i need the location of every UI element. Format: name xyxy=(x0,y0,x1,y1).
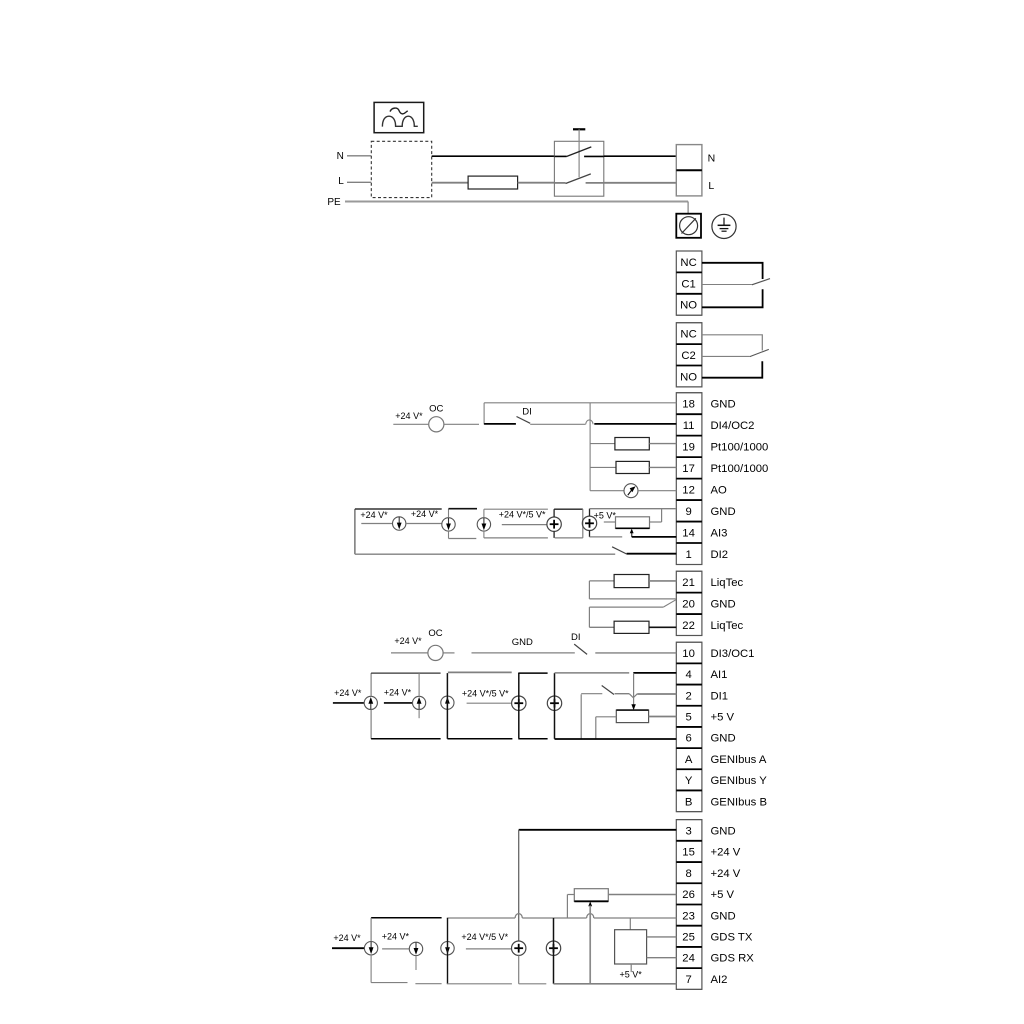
svg-text:10: 10 xyxy=(682,648,695,660)
svg-text:22: 22 xyxy=(682,620,695,632)
svg-text:6: 6 xyxy=(685,733,691,745)
svg-text:1: 1 xyxy=(685,549,691,561)
svg-text:DI3/OC1: DI3/OC1 xyxy=(711,648,755,660)
svg-text:GENIbus B: GENIbus B xyxy=(711,796,768,808)
svg-text:+5 V*: +5 V* xyxy=(594,511,617,521)
svg-text:Y: Y xyxy=(685,775,693,787)
svg-text:L: L xyxy=(708,180,714,192)
svg-text:GND: GND xyxy=(711,506,736,518)
svg-text:11: 11 xyxy=(683,420,695,432)
svg-text:A: A xyxy=(685,754,693,766)
svg-text:+24 V*: +24 V* xyxy=(411,509,439,519)
svg-text:N: N xyxy=(337,151,344,162)
svg-text:2: 2 xyxy=(685,690,691,702)
svg-text:26: 26 xyxy=(682,889,695,901)
svg-text:LiqTec: LiqTec xyxy=(711,577,744,589)
svg-text:+24 V*: +24 V* xyxy=(395,411,423,421)
svg-text:4: 4 xyxy=(685,669,691,681)
svg-text:17: 17 xyxy=(682,463,695,475)
svg-text:GND: GND xyxy=(711,399,736,411)
svg-text:25: 25 xyxy=(682,932,695,944)
svg-text:9: 9 xyxy=(685,506,691,518)
svg-text:+24 V*: +24 V* xyxy=(360,510,388,520)
svg-text:PE: PE xyxy=(327,197,341,208)
svg-text:+24 V*/5 V*: +24 V*/5 V* xyxy=(461,932,508,942)
svg-text:AI2: AI2 xyxy=(711,974,728,986)
svg-text:NC: NC xyxy=(680,257,696,269)
svg-text:NC: NC xyxy=(680,329,696,341)
svg-text:C1: C1 xyxy=(681,278,695,290)
svg-text:OC: OC xyxy=(429,403,443,414)
svg-text:3: 3 xyxy=(685,825,691,837)
svg-text:+5 V*: +5 V* xyxy=(620,970,643,980)
svg-text:DI2: DI2 xyxy=(711,549,729,561)
svg-text:8: 8 xyxy=(685,868,691,880)
svg-text:Pt100/1000: Pt100/1000 xyxy=(711,442,769,454)
svg-text:L: L xyxy=(338,176,344,187)
svg-text:GND: GND xyxy=(711,825,736,837)
svg-text:LiqTec: LiqTec xyxy=(711,620,744,632)
svg-text:GDS RX: GDS RX xyxy=(711,953,755,965)
svg-text:GENIbus Y: GENIbus Y xyxy=(711,775,768,787)
svg-text:15: 15 xyxy=(682,847,695,859)
svg-text:GND: GND xyxy=(512,637,533,648)
svg-text:+5 V: +5 V xyxy=(711,889,735,901)
svg-text:GENIbus A: GENIbus A xyxy=(711,754,767,766)
svg-text:14: 14 xyxy=(682,527,695,539)
svg-text:GND: GND xyxy=(711,910,736,922)
svg-text:DI1: DI1 xyxy=(711,690,729,702)
svg-text:7: 7 xyxy=(685,974,691,986)
svg-text:+24 V*: +24 V* xyxy=(384,688,412,698)
svg-text:+24 V: +24 V xyxy=(711,868,741,880)
svg-text:+24 V: +24 V xyxy=(711,847,741,859)
svg-text:DI: DI xyxy=(522,407,532,418)
svg-text:AI1: AI1 xyxy=(711,669,728,681)
svg-text:20: 20 xyxy=(682,599,695,611)
svg-text:NO: NO xyxy=(680,371,697,383)
svg-text:GND: GND xyxy=(711,733,736,745)
svg-text:DI: DI xyxy=(571,632,581,643)
svg-text:21: 21 xyxy=(682,577,695,589)
svg-text:DI4/OC2: DI4/OC2 xyxy=(711,420,755,432)
svg-text:NO: NO xyxy=(680,300,697,312)
svg-text:OC: OC xyxy=(428,628,442,639)
svg-text:+24 V*: +24 V* xyxy=(333,933,361,943)
svg-text:+24 V*: +24 V* xyxy=(334,688,362,698)
svg-text:12: 12 xyxy=(682,485,695,497)
svg-text:+24 V*: +24 V* xyxy=(394,636,422,646)
svg-text:18: 18 xyxy=(682,399,695,411)
svg-text:19: 19 xyxy=(682,442,695,454)
svg-text:B: B xyxy=(685,796,693,808)
svg-text:+24 V*/5 V*: +24 V*/5 V* xyxy=(462,689,509,699)
svg-text:23: 23 xyxy=(682,910,695,922)
svg-text:C2: C2 xyxy=(681,350,695,362)
svg-text:GDS TX: GDS TX xyxy=(711,932,753,944)
svg-text:24: 24 xyxy=(682,953,695,965)
svg-text:AO: AO xyxy=(711,485,728,497)
svg-text:5: 5 xyxy=(685,712,691,724)
svg-text:+24 V*/5 V*: +24 V*/5 V* xyxy=(499,509,546,519)
svg-text:GND: GND xyxy=(711,599,736,611)
svg-text:AI3: AI3 xyxy=(711,527,728,539)
svg-text:+24 V*: +24 V* xyxy=(382,932,410,942)
svg-text:Pt100/1000: Pt100/1000 xyxy=(711,463,769,475)
svg-text:+5 V: +5 V xyxy=(711,712,735,724)
svg-text:N: N xyxy=(708,152,716,164)
